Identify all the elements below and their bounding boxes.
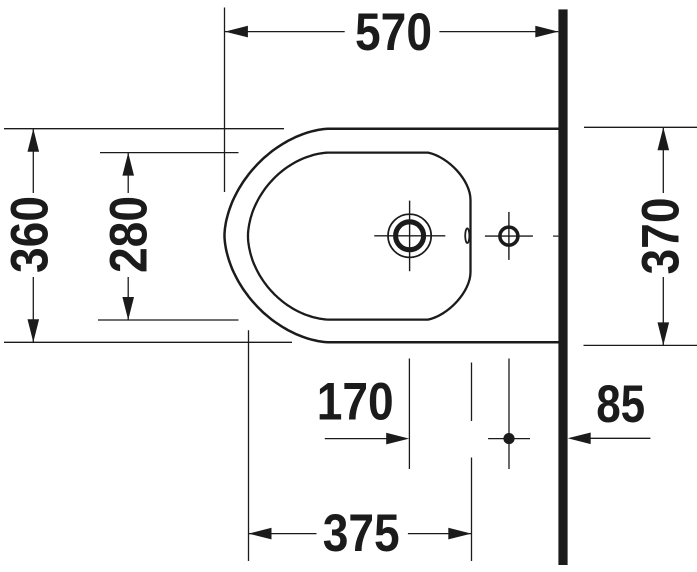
- svg-text:280: 280: [100, 196, 159, 273]
- svg-text:375: 375: [323, 504, 400, 563]
- svg-text:85: 85: [596, 375, 645, 434]
- svg-text:170: 170: [317, 373, 394, 432]
- svg-text:370: 370: [632, 198, 691, 275]
- svg-text:360: 360: [1, 196, 60, 273]
- svg-text:570: 570: [355, 3, 432, 62]
